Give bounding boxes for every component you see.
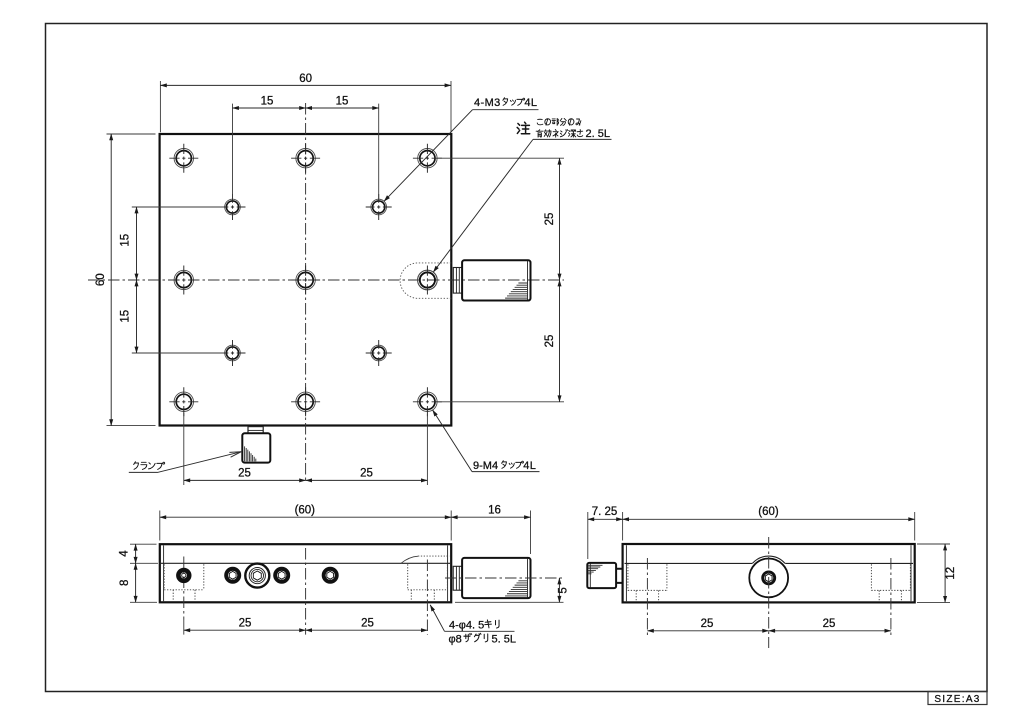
svg-text:12: 12 bbox=[945, 567, 957, 580]
svg-text:5. 5L: 5. 5L bbox=[492, 633, 516, 645]
svg-text:8: 8 bbox=[119, 580, 131, 586]
svg-text:25: 25 bbox=[701, 618, 714, 630]
svg-text:60: 60 bbox=[299, 73, 312, 85]
svg-text:15: 15 bbox=[119, 234, 131, 247]
svg-text:2. 5L: 2. 5L bbox=[586, 128, 610, 140]
svg-text:15: 15 bbox=[336, 95, 349, 107]
svg-text:4-φ4. 5: 4-φ4. 5 bbox=[449, 620, 484, 632]
svg-text:16: 16 bbox=[488, 504, 501, 516]
svg-text:4L: 4L bbox=[524, 97, 537, 109]
svg-text:(60): (60) bbox=[295, 504, 316, 516]
svg-text:4L: 4L bbox=[523, 460, 536, 472]
svg-text:15: 15 bbox=[119, 310, 131, 323]
svg-text:25: 25 bbox=[544, 335, 556, 348]
svg-text:5: 5 bbox=[558, 587, 570, 593]
svg-text:25: 25 bbox=[823, 618, 836, 630]
svg-text:4: 4 bbox=[118, 550, 130, 557]
svg-text:25: 25 bbox=[238, 467, 251, 479]
svg-text:7. 25: 7. 25 bbox=[592, 506, 618, 518]
svg-text:9-M4: 9-M4 bbox=[473, 460, 498, 472]
svg-text:60: 60 bbox=[95, 273, 107, 286]
svg-text:(60): (60) bbox=[758, 506, 779, 518]
svg-text:25: 25 bbox=[544, 213, 556, 226]
svg-text:4-M3: 4-M3 bbox=[474, 97, 501, 109]
svg-text:φ8: φ8 bbox=[449, 633, 462, 645]
svg-text:25: 25 bbox=[239, 617, 252, 629]
svg-text:25: 25 bbox=[361, 617, 374, 629]
svg-text:25: 25 bbox=[360, 467, 373, 479]
svg-text:15: 15 bbox=[261, 95, 274, 107]
svg-text:SIZE:A3: SIZE:A3 bbox=[934, 694, 980, 705]
